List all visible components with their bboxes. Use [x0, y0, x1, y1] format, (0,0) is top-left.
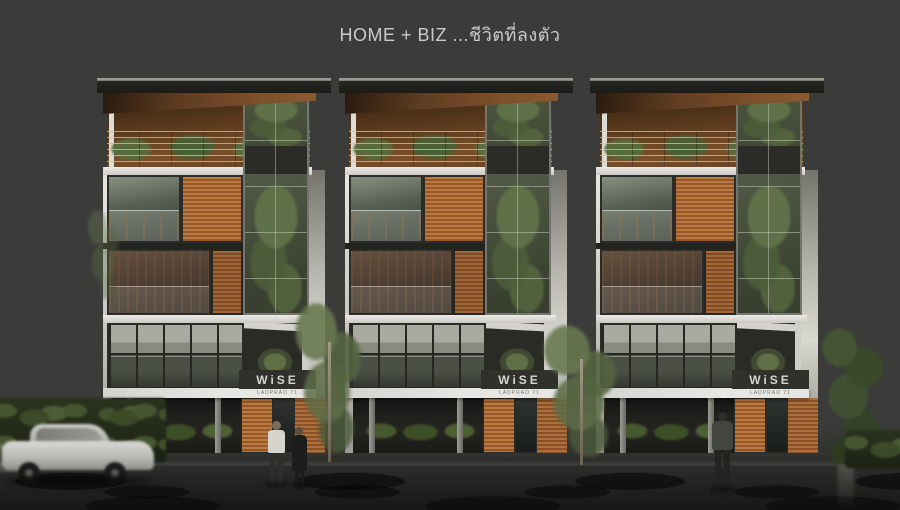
- ground-floor: [349, 398, 567, 453]
- glass-with-wood-interior: [107, 249, 211, 315]
- street-light-streak: [838, 462, 854, 510]
- sliding-glass-door: [107, 175, 181, 243]
- glass-box-lower: [245, 174, 307, 315]
- person-head: [295, 427, 303, 435]
- column: [369, 398, 375, 453]
- entrance-glass-panel: [766, 398, 788, 453]
- person-torso: [292, 435, 307, 471]
- wood-side-panel: [788, 398, 818, 453]
- person-torso: [712, 421, 733, 450]
- right-side-wall: [801, 170, 818, 398]
- glass-box-spandrel: [487, 146, 549, 174]
- rendering-canvas: HOME + BIZ ...ชีวิตที่ลงตัว: [0, 0, 900, 510]
- floor-slab: [596, 315, 807, 323]
- wood-cladding-panel: [674, 175, 736, 243]
- person-man-light-shirt: [268, 421, 285, 484]
- wood-entrance-door: [734, 398, 766, 453]
- sign-brand-text: WiSE: [498, 373, 541, 387]
- person-legs: [270, 453, 283, 484]
- wise-signboard: WiSE: [239, 370, 316, 389]
- floor-2: [600, 249, 736, 315]
- roof-slab: [590, 78, 824, 93]
- wood-side-panel: [537, 398, 567, 453]
- floor-3: [107, 175, 243, 243]
- column: [215, 398, 221, 453]
- floor-3: [349, 175, 485, 243]
- ground-floor: [600, 398, 818, 453]
- balcony-ceiling: [486, 323, 551, 332]
- glass-box-lower: [738, 174, 800, 315]
- hedge-right: [845, 430, 900, 468]
- balcony-ceiling: [737, 323, 802, 332]
- wise-signboard: WiSE: [732, 370, 809, 389]
- wood-entrance-door: [483, 398, 515, 453]
- corner-glass-box: [243, 92, 309, 315]
- car-wheel-rear: [104, 462, 126, 484]
- glass-with-wood-interior: [600, 249, 704, 315]
- floor-slab: [345, 315, 556, 323]
- sliding-glass-door: [349, 175, 423, 243]
- glass-box-spandrel: [738, 146, 800, 174]
- person-head: [718, 412, 727, 421]
- column: [620, 398, 626, 453]
- roof-slab: [97, 78, 331, 93]
- office-window-wall: [349, 323, 486, 389]
- roof-slab: [339, 78, 573, 93]
- building-center: WiSE LADPRAO 71: [345, 78, 567, 453]
- person-woman-dark-dress: [292, 427, 307, 486]
- right-side-wall: [550, 170, 567, 398]
- building-right: WiSE LADPRAO 71: [596, 78, 818, 453]
- page-title: HOME + BIZ ...ชีวิตที่ลงตัว: [0, 20, 900, 46]
- balcony-ceiling: [244, 323, 309, 332]
- floor-2: [107, 249, 243, 315]
- person-legs: [295, 471, 304, 486]
- car-wheel-front: [18, 462, 40, 484]
- car-silver-hatchback: [2, 424, 160, 488]
- glass-box-tree: [487, 174, 549, 315]
- floor-2: [349, 249, 485, 315]
- wood-cladding-panel: [453, 249, 485, 315]
- floor-slab: [103, 315, 314, 323]
- glass-box-lower: [487, 174, 549, 315]
- glass-with-wood-interior: [349, 249, 453, 315]
- glass-box-tree: [245, 174, 307, 315]
- sign-subtext: LADPRAO 71: [481, 389, 558, 398]
- sign-brand-text: WiSE: [256, 373, 299, 387]
- sliding-glass-door: [600, 175, 674, 243]
- wood-cladding-panel: [704, 249, 736, 315]
- person-torso: [268, 430, 285, 453]
- office-window-wall: [600, 323, 737, 389]
- wise-signboard: WiSE: [481, 370, 558, 389]
- corner-glass-box: [485, 92, 551, 315]
- carport-opening: [353, 398, 483, 453]
- right-side-wall: [308, 170, 325, 398]
- floor-3: [600, 175, 736, 243]
- person-head: [272, 421, 281, 430]
- person-legs: [715, 450, 730, 489]
- person-man-dark-jacket: [712, 412, 733, 489]
- column: [457, 398, 463, 453]
- sign-brand-text: WiSE: [749, 373, 792, 387]
- glass-box-tree: [738, 174, 800, 315]
- corner-glass-box: [736, 92, 802, 315]
- sign-subtext: LADPRAO 71: [239, 389, 316, 398]
- entrance-glass-panel: [515, 398, 537, 453]
- wood-cladding-panel: [211, 249, 243, 315]
- building-left: WiSE LADPRAO 71: [103, 78, 325, 453]
- office-window-wall: [107, 323, 244, 389]
- sign-subtext: LADPRAO 71: [732, 389, 809, 398]
- glass-box-spandrel: [245, 146, 307, 174]
- wood-cladding-panel: [181, 175, 243, 243]
- wood-cladding-panel: [423, 175, 485, 243]
